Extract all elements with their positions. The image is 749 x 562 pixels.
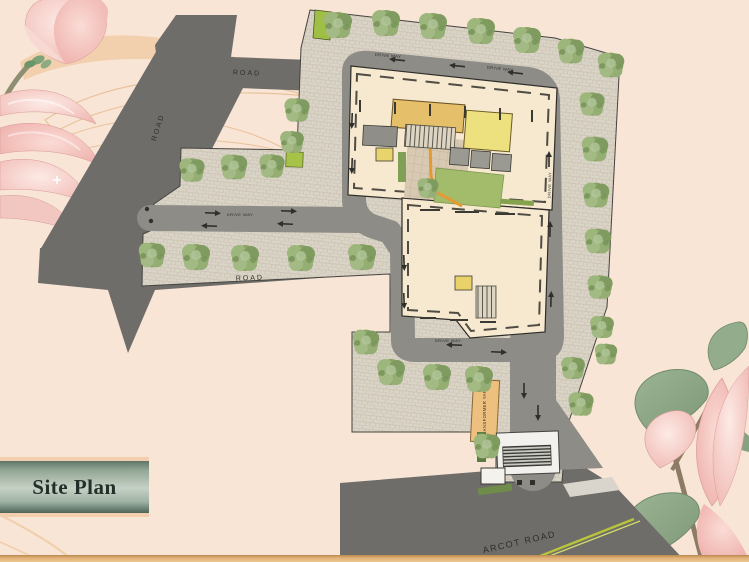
- driveway-label: DRIVE WAY: [435, 338, 462, 343]
- gate-post: [517, 480, 522, 485]
- transformer-yard-label: TRANSFORMER YARD: [482, 386, 487, 437]
- basement-ramp: [503, 445, 552, 467]
- driveway-label: DRIVE WAY: [227, 212, 254, 217]
- lawn: [434, 168, 504, 208]
- road-label-south: ROAD: [236, 275, 264, 283]
- lift-yellow-box: [455, 276, 472, 290]
- gate-post: [530, 480, 535, 485]
- courtyard-tree: [418, 178, 439, 198]
- bottom-border-bar: [0, 555, 749, 562]
- site-plan-page: TRANSFORMER YARD: [0, 0, 749, 562]
- site-plan-label-box: Site Plan: [0, 457, 149, 517]
- amenity-yellow-box: [376, 148, 393, 161]
- green-strip-west: [286, 152, 304, 168]
- stairs-lower: [476, 286, 496, 318]
- site-plan-title: Site Plan: [32, 475, 116, 500]
- west-gate-post: [145, 207, 149, 211]
- road-label-top: ROAD: [233, 70, 261, 78]
- planting-strip: [398, 152, 406, 182]
- utility-rooms: [362, 125, 397, 147]
- driveway-west-spur: [150, 218, 360, 220]
- driveway-label: DRIVE WAY: [547, 172, 553, 199]
- security-cabin: [481, 468, 505, 484]
- west-gate-post: [149, 219, 153, 223]
- stairs-upper: [404, 124, 455, 149]
- deck-yellow-block: [464, 110, 513, 151]
